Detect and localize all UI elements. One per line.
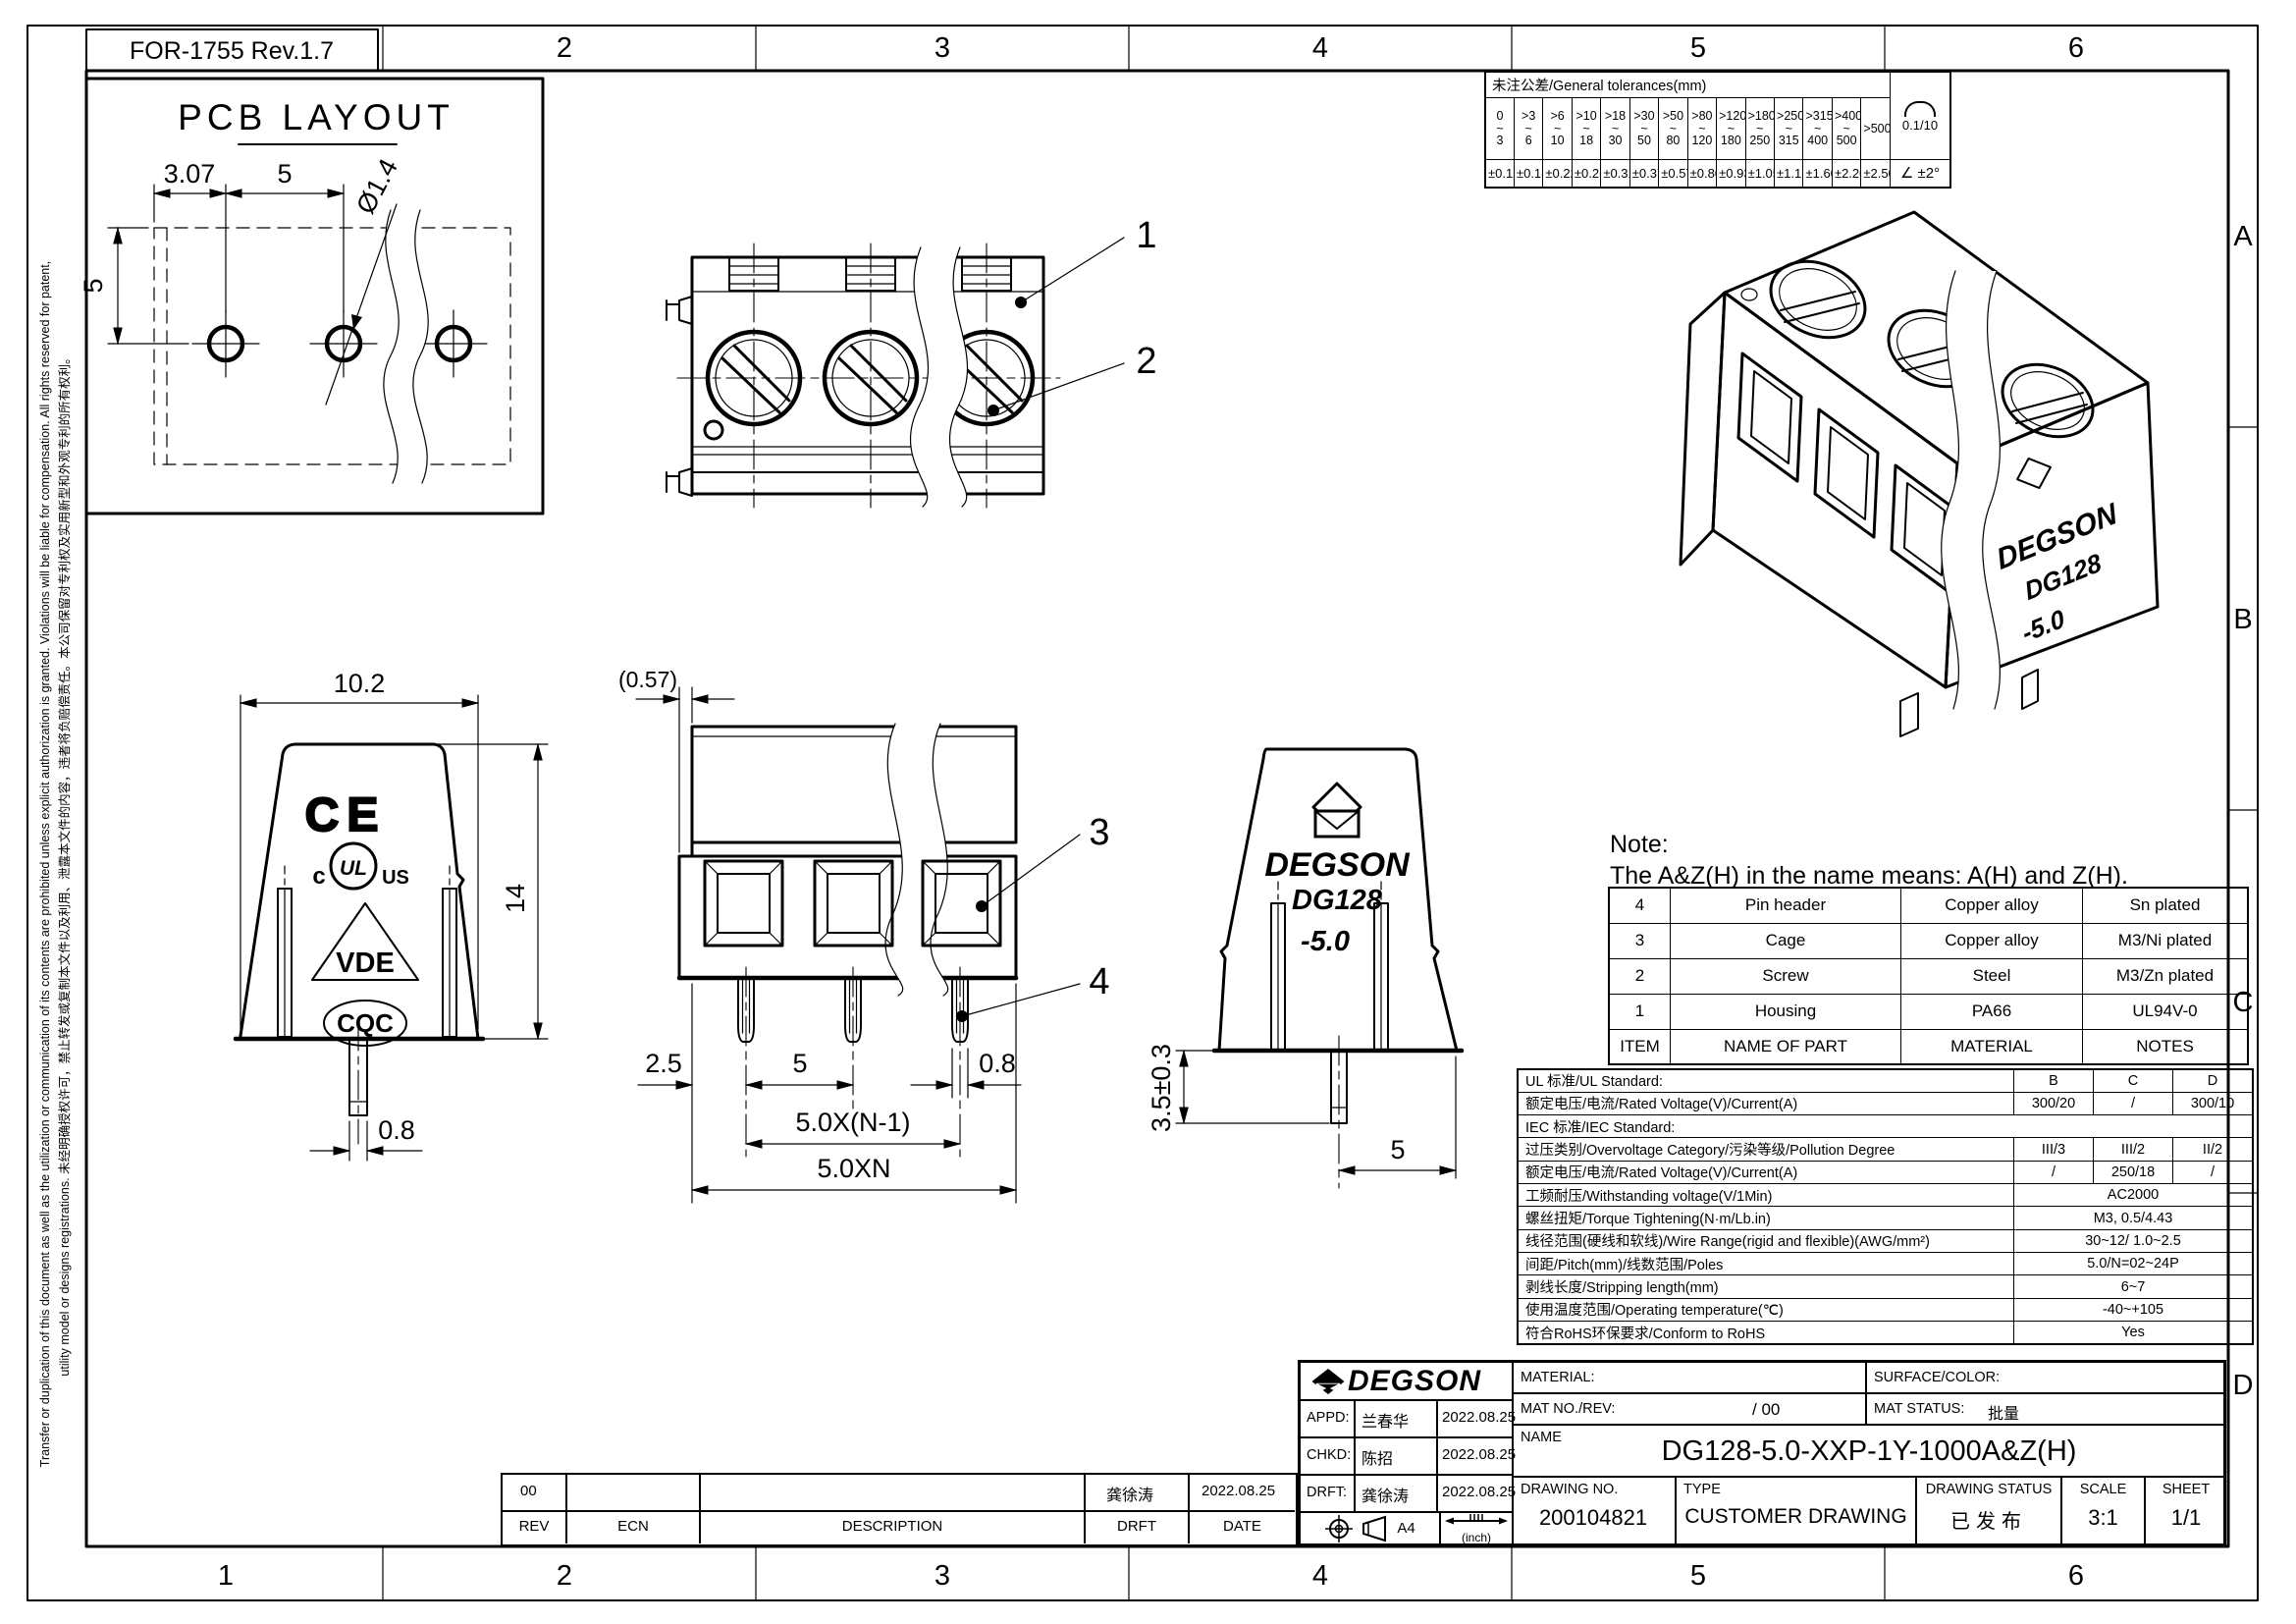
spec-value: 300/20 [2014,1092,2094,1114]
chkd-label: CHKD: [1307,1447,1351,1463]
mounting-channel [443,866,456,1037]
parts-header-material: MATERIAL [1901,1029,2083,1064]
dim-hole-diameter: Ø1.4 [350,154,403,219]
matstatus-label: MAT STATUS: [1874,1401,1964,1417]
table-row: ±0.12 ±0.18 ±0.22 ±0.26 ±0.31 ±0.37 ±0.5… [1485,160,1950,189]
screw-head-iso [1759,247,1878,352]
pcb-hole [192,310,259,377]
parts-header-notes: NOTES [2083,1029,2249,1064]
ce-mark-icon: CE [305,789,387,841]
spec-value: Yes [2014,1322,2254,1344]
end-view: CE UL c US VDE CQC 10.2 14 0.8 [236,669,548,1161]
dim-10.2: 10.2 [334,669,386,698]
rev-drafter: 龚徐涛 [1106,1482,1153,1505]
spec-value: / [2014,1161,2094,1183]
drft-name: 龚徐涛 [1362,1483,1409,1506]
part-notes: Sn plated [2083,888,2249,923]
status-label: DRAWING STATUS [1917,1482,2060,1497]
spec-label: 过压类别/Overvoltage Category/污染等级/Pollution… [1518,1138,2014,1161]
spec-value: 5.0/N=02~24P [2014,1253,2254,1275]
drft-date: 2022.08.25 [1442,1484,1516,1500]
grid-col-bottom: 3 [934,1560,950,1592]
dim-3.07: 3.07 [164,159,216,189]
dim-5.0x(n-1): 5.0X(N-1) [795,1108,910,1137]
part-material: Copper alloy [1901,923,2083,958]
table-row: 0 ~ 3 >3 ~ 6 >6 ~ 10 >10 ~ 18 >18 ~ 30 >… [1485,97,1950,159]
spec-value: / [2173,1161,2254,1183]
tolerance-range: 0 ~ 3 [1485,97,1514,159]
spec-label: 额定电压/电流/Rated Voltage(V)/Current(A) [1518,1092,2014,1114]
end-view-dimensions: 10.2 14 0.8 [240,669,548,1161]
flatness-icon [1904,101,1936,117]
iso-brand-marking: DEGSON DG128 -5.0 [1994,453,2122,648]
ul-letters: UL [340,857,367,880]
rev-date: 2022.08.25 [1201,1483,1275,1499]
flatness-value: 0.1/10 [1893,118,1948,133]
disclaimer-line2: utility model or designs registrations. … [55,134,75,1595]
type-value: CUSTOMER DRAWING [1677,1505,1915,1529]
type-label: TYPE [1683,1482,1721,1497]
dim-2.5: 2.5 [645,1049,682,1078]
tolerance-range: >120 ~ 180 [1717,97,1745,159]
spec-label: 剥线长度/Stripping length(mm) [1518,1275,2014,1298]
iso-window [1815,409,1878,537]
tolerance-value: ±0.18 [1514,160,1542,189]
molded-pitch: -5.0 [1301,926,1350,957]
tolerance-range: >250 ~ 315 [1775,97,1803,159]
grid-col-top: 6 [2068,32,2084,64]
screw-head-iso [1991,351,2104,450]
form-revision-label: FOR-1755 Rev.1.7 [130,37,334,65]
degson-logo-icon [1308,1366,1348,1397]
tolerance-range: >18 ~ 30 [1601,97,1629,159]
iso-pitch: -5.0 [2019,603,2068,648]
table-row: 3 Cage Copper alloy M3/Ni plated [1609,923,2248,958]
grid-labels: 2 3 4 5 6 1 2 3 4 5 6 A B C D [218,32,2254,1592]
drft-label: DRFT: [1307,1485,1347,1500]
table-row: 过压类别/Overvoltage Category/污染等级/Pollution… [1518,1138,2253,1161]
dim-0.8: 0.8 [378,1115,415,1145]
scale-value: 3:1 [2062,1505,2144,1531]
specifications-table: UL 标准/UL Standard: B C D 额定电压/电流/Rated V… [1517,1068,2254,1345]
inch-label: (inch) [1441,1532,1512,1543]
revision-strip: 00 龚徐涛 2022.08.25 REV ECN DESCRIPTION DR… [501,1473,1298,1546]
table-header-row: ITEM NAME OF PART MATERIAL NOTES [1609,1029,2248,1064]
ecn-header: ECN [567,1518,699,1535]
angle-value: ±2° [1918,165,1941,182]
tolerance-range: >10 ~ 18 [1572,97,1600,159]
front-view: (0.57) 2.5 5 0.8 5.0X(N-1) 5.0XN 3 4 [618,667,1110,1203]
ul-mark-icon: UL c US [312,843,409,890]
tolerance-value: ±0.22 [1543,160,1572,189]
table-row: 额定电压/电流/Rated Voltage(V)/Current(A) 300/… [1518,1092,2253,1114]
tolerance-range: >6 ~ 10 [1543,97,1572,159]
rev-header: REV [503,1518,565,1535]
grid-row-right: D [2233,1370,2254,1401]
grid-col-bottom: 5 [1690,1560,1706,1592]
isometric-view: DEGSON DG128 -5.0 [1681,212,2158,736]
chkd-name: 陈招 [1362,1445,1393,1469]
mounting-channel [278,866,292,1037]
table-row: 工频耐压/Withstanding voltage(V/1Min) AC2000 [1518,1184,2253,1207]
part-material: PA66 [1901,994,2083,1029]
mounting-channel [1271,882,1285,1051]
drawingno-label: DRAWING NO. [1521,1482,1618,1497]
cqc-letters: CQC [337,1008,394,1038]
matstatus-value: 批量 [1988,1400,2019,1424]
spec-label: 线径范围(硬线和软线)/Wire Range(rigid and flexibl… [1518,1229,2014,1252]
table-row: 2 Screw Steel M3/Zn plated [1609,958,2248,994]
dim-5-pitch: 5 [792,1049,807,1078]
wire-entry-window [815,861,892,946]
grid-row-right: A [2233,221,2253,252]
degson-logo-icon [1313,784,1361,837]
callout-4: 4 [1089,961,1109,1002]
part-name: Cage [1671,923,1901,958]
general-tolerances-table: 未注公差/General tolerances(mm) 0.1/10 0 ~ 3… [1484,71,1951,189]
appd-name: 兰春华 [1362,1408,1409,1432]
spec-label: 符合RoHS环保要求/Conform to RoHS [1518,1322,2014,1344]
tolerance-value: ±0.37 [1629,160,1658,189]
drawing-sheet: 2 3 4 5 6 1 2 3 4 5 6 A B C D FOR-1755 R… [0,0,2296,1624]
mm-ruler-icon [1445,1513,1508,1527]
spec-value: 30~12/ 1.0~2.5 [2014,1229,2254,1252]
tolerance-range: >500 [1861,97,1891,159]
appd-label: APPD: [1307,1410,1350,1426]
back-view-dimensions: 3.5±0.3 5 [1147,1044,1456,1178]
first-angle-target-icon [1324,1515,1354,1543]
wire-entry-window [705,861,782,946]
spec-label: 使用温度范围/Operating temperature(℃) [1518,1298,2014,1321]
grid-col-bottom: 2 [557,1560,572,1592]
ul-us: US [382,867,409,889]
tolerance-range: >180 ~ 250 [1745,97,1774,159]
disclaimer-line1: Transfer or duplication of this document… [35,134,55,1595]
grid-col-bottom: 6 [2068,1560,2084,1592]
tolerance-range: >315 ~ 400 [1803,97,1832,159]
part-notes: M3/Zn plated [2083,958,2249,994]
tolerance-value: ±1.15 [1775,160,1803,189]
chkd-date: 2022.08.25 [1442,1446,1516,1463]
spec-label: 额定电压/电流/Rated Voltage(V)/Current(A) [1518,1161,2014,1183]
part-name: Housing [1671,994,1901,1029]
grid-col-top: 2 [557,32,572,64]
form-revision-box: FOR-1755 Rev.1.7 [86,29,378,71]
callout-2: 2 [1136,341,1156,382]
matno-label: MAT NO./REV: [1521,1401,1615,1417]
grid-col-top: 5 [1690,32,1706,64]
pcb-hole [310,310,377,377]
spec-value: II/2 [2173,1138,2254,1161]
note-block: Note: The A&Z(H) in the name means: A(H)… [1610,831,2128,890]
locating-hole [705,421,722,439]
iso-pin [2022,670,2038,709]
title-block: DEGSON MATERIAL: SURFACE/COLOR: MAT NO./… [1298,1360,2226,1546]
surface-label: SURFACE/COLOR: [1874,1370,2000,1385]
back-view: DEGSON DG128 -5.0 3.5±0.3 5 [1147,749,1462,1188]
third-angle-cone-icon [1360,1515,1391,1543]
tolerance-value: ±0.57 [1659,160,1687,189]
spec-label: IEC 标准/IEC Standard: [1518,1115,2253,1138]
flatness-tolerance-cell: 0.1/10 [1891,72,1951,160]
part-item: 1 [1609,994,1671,1029]
tolerance-value: ±1.60 [1803,160,1832,189]
table-row: 间距/Pitch(mm)/线数范围/Poles 5.0/N=02~24P [1518,1253,2253,1275]
table-row: 符合RoHS环保要求/Conform to RoHS Yes [1518,1322,2253,1344]
vde-mark-icon: VDE [312,903,418,980]
molded-brand: DEGSON [1264,846,1411,884]
angle-icon: ∠ [1900,165,1913,182]
iso-pin [1900,693,1918,736]
tolerance-value: ±0.12 [1485,160,1514,189]
tolerance-value: ±2.20 [1832,160,1860,189]
spec-col-d: D [2173,1069,2254,1092]
spec-value: / [2094,1092,2173,1114]
part-notes: M3/Ni plated [2083,923,2249,958]
part-name: Pin header [1671,888,1901,923]
part-item: 3 [1609,923,1671,958]
tolerance-value: ±0.80 [1687,160,1716,189]
part-material: Steel [1901,958,2083,994]
tolerance-value: ±1.05 [1745,160,1774,189]
pcb-layout-title: PCB LAYOUT [178,97,454,137]
dim-14: 14 [501,884,530,913]
table-row: 剥线长度/Stripping length(mm) 6~7 [1518,1275,2253,1298]
tolerance-range: >50 ~ 80 [1659,97,1687,159]
spec-label: 间距/Pitch(mm)/线数范围/Poles [1518,1253,2014,1275]
dim-3.5: 3.5±0.3 [1147,1044,1176,1132]
part-material: Copper alloy [1901,888,2083,923]
callout-1: 1 [1136,215,1156,256]
tolerance-range: >400 ~ 500 [1832,97,1860,159]
table-row: IEC 标准/IEC Standard: [1518,1115,2253,1138]
dim-5-horizontal: 5 [277,159,292,189]
spec-col-b: B [2014,1069,2094,1092]
iso-window [1738,353,1801,481]
spec-label: UL 标准/UL Standard: [1518,1069,2014,1092]
table-row: UL 标准/UL Standard: B C D [1518,1069,2253,1092]
note-line2: The A&Z(H) in the name means: A(H) and Z… [1610,862,2128,890]
vde-letters: VDE [336,947,395,979]
parts-header-name: NAME OF PART [1671,1029,1901,1064]
paper-size: A4 [1397,1520,1415,1537]
appd-date: 2022.08.25 [1442,1409,1516,1426]
tolerance-value: ±2.50 [1861,160,1891,189]
top-view: 1 2 [667,215,1157,508]
molded-model: DG128 [1292,885,1383,916]
spec-value: M3, 0.5/4.43 [2014,1207,2254,1229]
parts-header-item: ITEM [1609,1029,1671,1064]
tolerance-value: ±0.26 [1572,160,1600,189]
status-value: 已发布 [1917,1505,2060,1534]
table-row: 线径范围(硬线和软线)/Wire Range(rigid and flexibl… [1518,1229,2253,1252]
drft-header: DRFT [1086,1518,1188,1535]
drawingno-value: 200104821 [1515,1505,1672,1531]
dim-5.0xn: 5.0XN [817,1154,890,1183]
table-row: 额定电压/电流/Rated Voltage(V)/Current(A) / 25… [1518,1161,2253,1183]
tolerance-range: >80 ~ 120 [1687,97,1716,159]
spec-value: 300/10 [2173,1092,2254,1114]
spec-value: -40~+105 [2014,1298,2254,1321]
spec-value: AC2000 [2014,1184,2254,1207]
grid-col-top: 3 [934,32,950,64]
spec-value: III/2 [2094,1138,2173,1161]
part-item: 2 [1609,958,1671,994]
spec-value: 250/18 [2094,1161,2173,1183]
grid-col-top: 4 [1312,32,1328,64]
tolerances-title: 未注公差/General tolerances(mm) [1485,72,1891,97]
material-label: MATERIAL: [1521,1370,1594,1385]
spec-value: III/3 [2014,1138,2094,1161]
copyright-disclaimer: Transfer or duplication of this document… [35,134,75,1595]
table-row: 1 Housing PA66 UL94V-0 [1609,994,2248,1029]
scale-label: SCALE [2062,1482,2144,1497]
spec-label: 工频耐压/Withstanding voltage(V/1Min) [1518,1184,2014,1207]
scale-ruler-cell: (inch) [1441,1513,1512,1543]
pcb-hole [420,310,487,377]
description-header: DESCRIPTION [701,1518,1084,1535]
callout-3: 3 [1089,812,1109,853]
pcb-layout-view: PCB LAYOUT 3.07 5 5 [79,79,543,514]
dim-5-vertical: 5 [79,278,108,293]
tolerance-range: >30 ~ 50 [1629,97,1658,159]
projection-symbols-cell: A4 [1301,1513,1439,1543]
part-item: 4 [1609,888,1671,923]
part-name: Screw [1671,958,1901,994]
dim-5-back: 5 [1390,1135,1405,1164]
table-row: 4 Pin header Copper alloy Sn plated [1609,888,2248,923]
degson-wordmark: DEGSON [1348,1365,1481,1398]
grid-row-right: B [2233,604,2252,635]
dim-0.57: (0.57) [618,667,677,692]
matno-value: / 00 [1752,1400,1780,1420]
angle-tolerance-cell: ∠ ±2° [1891,160,1951,189]
spec-col-c: C [2094,1069,2173,1092]
part-name-value: DG128-5.0-XXP-1Y-1000A&Z(H) [1515,1435,2223,1475]
table-row: 螺丝扭矩/Torque Tightening(N·m/Lb.in) M3, 0.… [1518,1207,2253,1229]
parts-list-table: 4 Pin header Copper alloy Sn plated 3 Ca… [1608,887,2249,1065]
rev-number: 00 [520,1483,537,1499]
part-notes: UL94V-0 [2083,994,2249,1029]
tolerance-range: >3 ~ 6 [1514,97,1542,159]
table-row: 未注公差/General tolerances(mm) 0.1/10 [1485,72,1950,97]
sheet-label: SHEET [2146,1482,2226,1497]
degson-logo: DEGSON [1308,1365,1510,1398]
table-row: 使用温度范围/Operating temperature(℃) -40~+105 [1518,1298,2253,1321]
ul-c: c [312,863,325,890]
dim-0.8-pin: 0.8 [979,1049,1016,1078]
note-line1: Note: [1610,831,1669,858]
spec-value: 6~7 [2014,1275,2254,1298]
sheet-value: 1/1 [2146,1505,2226,1531]
grid-col-bottom: 1 [218,1560,234,1592]
tolerance-value: ±0.93 [1717,160,1745,189]
date-header: DATE [1190,1518,1295,1535]
pcb-dimensions: 3.07 5 5 Ø1.4 [79,154,403,405]
spec-label: 螺丝扭矩/Torque Tightening(N·m/Lb.in) [1518,1207,2014,1229]
grid-col-bottom: 4 [1312,1560,1328,1592]
tolerance-value: ±0.31 [1601,160,1629,189]
